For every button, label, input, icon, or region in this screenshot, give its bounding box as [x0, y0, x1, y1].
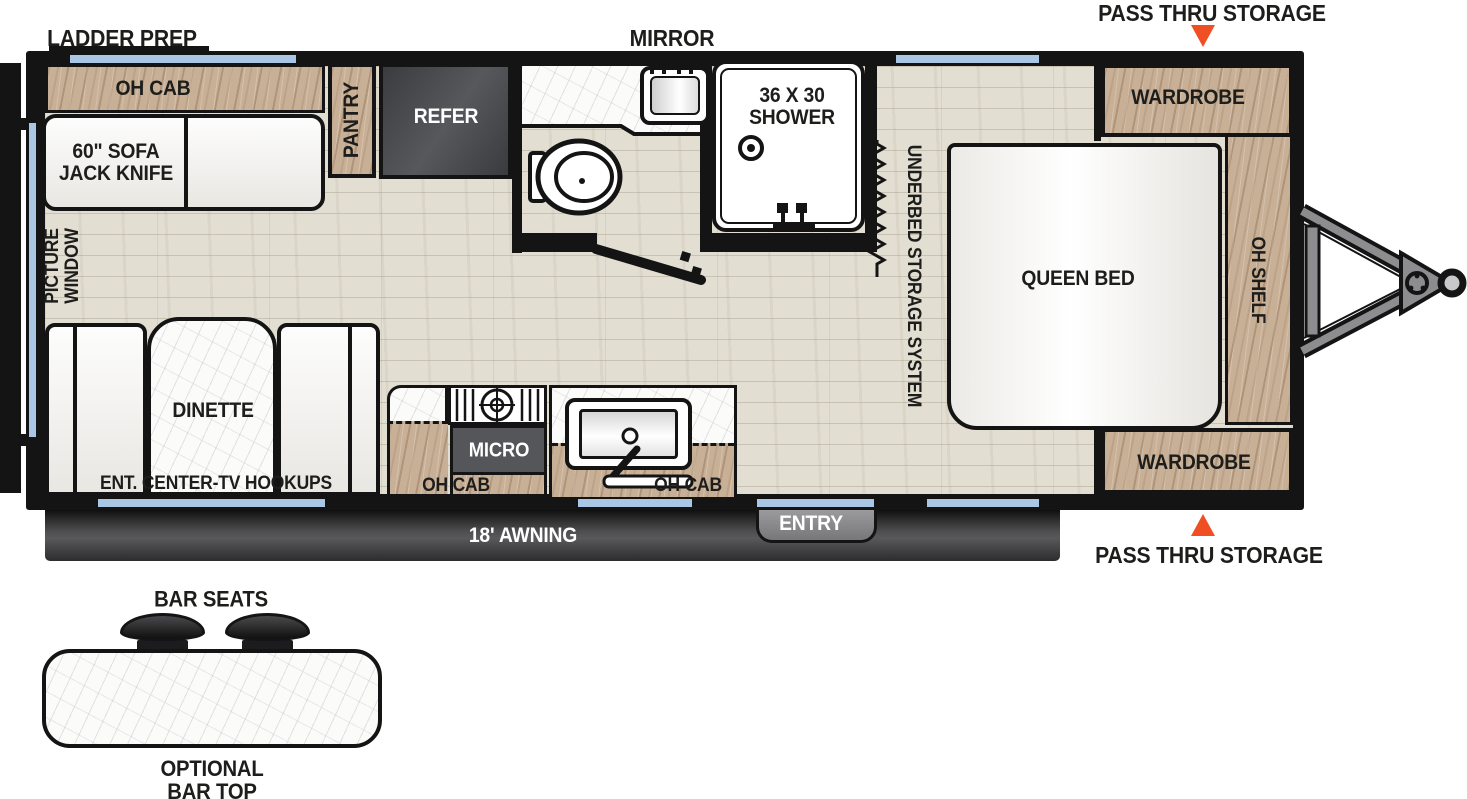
- label-oh-cab-rear: OH CAB: [115, 78, 190, 100]
- window-strip: [927, 499, 1039, 507]
- label-wardrobe-bottom: WARDROBE: [1137, 452, 1250, 474]
- kitchen-sink: [565, 398, 692, 470]
- hitch-icon: [1302, 211, 1463, 351]
- label-pass-thru-top: PASS THRU STORAGE: [1098, 1, 1326, 25]
- pass-thru-arrow-down-icon: [1191, 25, 1215, 47]
- label-dinette: DINETTE: [172, 400, 253, 422]
- label-refer: REFER: [414, 106, 479, 128]
- label-oh-cab-kitchen-left: OH CAB: [422, 476, 490, 496]
- label-optional-bar-top: OPTIONAL BAR TOP: [160, 757, 263, 799]
- bar-stool-icon: [225, 613, 310, 641]
- kitchen-sink-basin: [579, 409, 678, 459]
- shower-right-wall: [865, 53, 877, 252]
- window-strip: [757, 499, 874, 507]
- label-wardrobe-top: WARDROBE: [1131, 87, 1244, 109]
- label-shower: 36 X 30 SHOWER: [749, 85, 835, 129]
- label-picture-window: PICTURE WINDOW: [43, 228, 83, 304]
- bathroom-sink: [640, 66, 710, 125]
- label-oh-shelf: OH SHELF: [1247, 237, 1267, 324]
- rear-bumper: [0, 63, 21, 493]
- label-ent-center: ENT. CENTER-TV HOOKUPS: [100, 474, 332, 494]
- bathroom-left-wall: [512, 53, 522, 253]
- label-oh-cab-kitchen-right: OH CAB: [654, 476, 722, 496]
- stove-cooktop: [448, 385, 547, 425]
- window-strip: [578, 499, 692, 507]
- travel-trailer-floorplan: LADDER PREP MIRROR PASS THRU STORAGE PAS…: [0, 0, 1467, 799]
- label-awning: 18' AWNING: [469, 525, 577, 547]
- label-bar-seats: BAR SEATS: [154, 587, 268, 610]
- bench-divider: [73, 327, 77, 492]
- label-entry: ENTRY: [779, 513, 843, 535]
- label-underbed-storage: UNDERBED STORAGE SYSTEM: [903, 145, 923, 408]
- window-strip: [896, 55, 1039, 63]
- pass-thru-arrow-up-icon: [1191, 514, 1215, 536]
- wardrobe-wall-stub: [1094, 64, 1101, 141]
- kitchen-counter-left: [387, 385, 448, 421]
- wardrobe-wall-stub: [1094, 426, 1101, 494]
- dinette-bench-right: [277, 323, 380, 496]
- bar-top: [42, 649, 382, 748]
- picture-window-strip: [29, 123, 36, 437]
- label-ladder-prep: LADDER PREP: [47, 26, 197, 50]
- label-micro: MICRO: [469, 441, 529, 462]
- bar-stool-icon: [120, 613, 205, 641]
- label-pass-thru-bottom: PASS THRU STORAGE: [1095, 543, 1323, 567]
- sofa-cushion-divider: [184, 118, 188, 207]
- window-strip: [70, 55, 296, 63]
- label-mirror: MIRROR: [630, 26, 715, 50]
- label-sofa: 60" SOFA JACK KNIFE: [59, 141, 173, 185]
- dinette-bench-left: [45, 323, 147, 496]
- bathroom-bottom-wall: [512, 233, 597, 252]
- bathroom-sink-basin: [650, 76, 700, 115]
- label-pantry: PANTRY: [341, 82, 363, 158]
- bench-divider: [348, 327, 352, 492]
- label-queen-bed: QUEEN BED: [1021, 268, 1134, 290]
- window-strip: [98, 499, 325, 507]
- shower-bottom-wall: [706, 233, 872, 252]
